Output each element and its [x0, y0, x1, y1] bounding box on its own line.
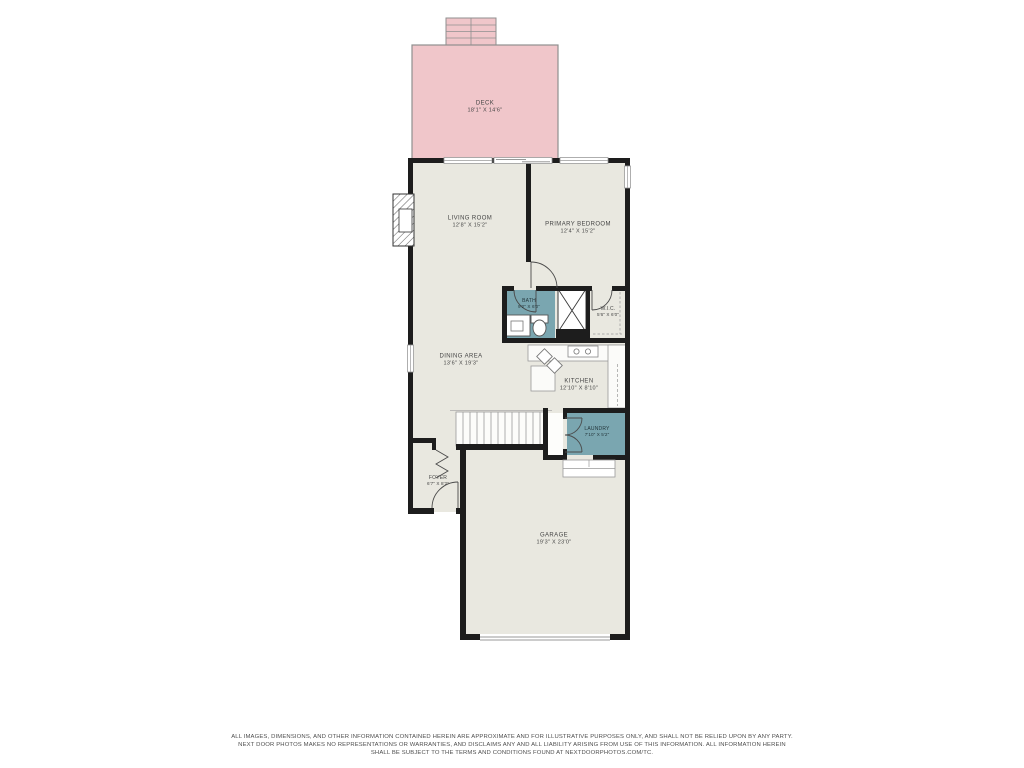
bath-fixtures	[506, 315, 548, 336]
cooktop	[568, 346, 598, 357]
garage-step	[563, 460, 615, 477]
floorplan-drawing	[0, 0, 1024, 768]
shower	[558, 289, 586, 332]
staircase	[450, 411, 552, 447]
disclaimer-text: ALL IMAGES, DIMENSIONS, AND OTHER INFORM…	[0, 733, 1024, 758]
toilet-bowl	[533, 320, 546, 336]
floorplan-canvas: DECK18'1" X 14'6" LIVING ROOM12'8" X 15'…	[0, 0, 1024, 768]
disclaimer-line-2: NEXT DOOR PHOTOS MAKES NO REPRESENTATION…	[0, 741, 1024, 749]
vanity	[506, 315, 530, 336]
fireplace	[393, 194, 414, 246]
deck-area	[412, 18, 558, 160]
disclaimer-line-1: ALL IMAGES, DIMENSIONS, AND OTHER INFORM…	[0, 733, 1024, 741]
sliding-door-deck	[494, 158, 552, 164]
laundry-floor	[548, 413, 625, 455]
disclaimer-line-3: SHALL BE SUBJECT TO THE TERMS AND CONDIT…	[0, 749, 1024, 757]
floor-fill	[410, 160, 628, 638]
